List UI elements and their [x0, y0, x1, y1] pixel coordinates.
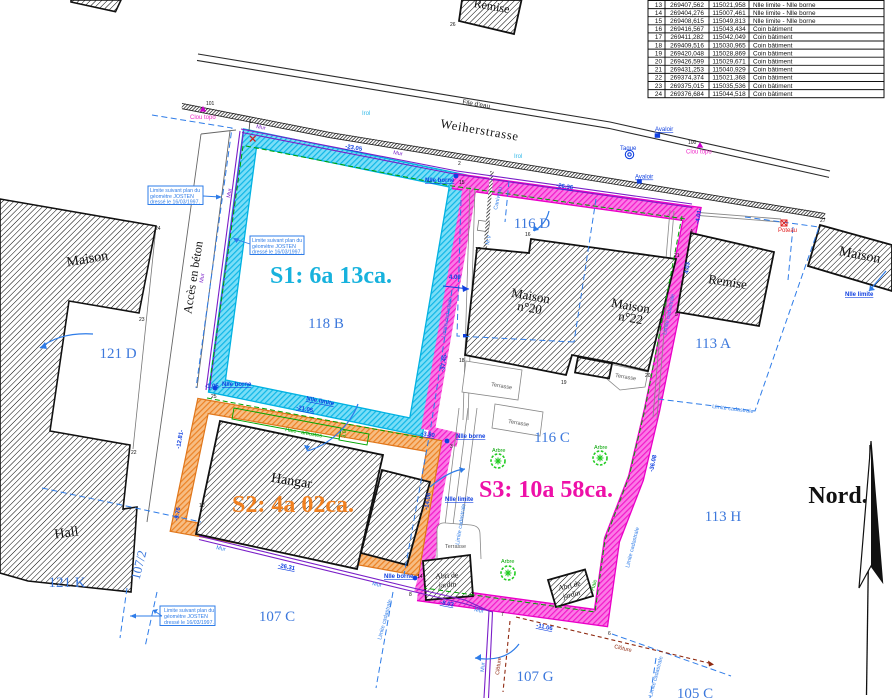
svg-text:115043,434: 115043,434 — [712, 26, 746, 33]
svg-text:Nlle borne: Nlle borne — [222, 382, 252, 388]
svg-text:Nlle limite - Nlle borne: Nlle limite - Nlle borne — [753, 2, 816, 9]
svg-text:8: 8 — [409, 592, 412, 598]
svg-text:jardin: jardin — [437, 579, 456, 589]
svg-text:115049,813: 115049,813 — [712, 18, 746, 25]
svg-text:Coin bâtiment: Coin bâtiment — [753, 83, 793, 90]
svg-text:Taque: Taque — [620, 146, 637, 152]
svg-text:dressé le 16/03/1997.: dressé le 16/03/1997. — [252, 250, 302, 256]
svg-text:269420,048: 269420,048 — [670, 50, 704, 57]
svg-text:23: 23 — [655, 83, 663, 90]
svg-text:3: 3 — [450, 444, 453, 450]
svg-text:Coin bâtiment: Coin bâtiment — [753, 91, 793, 98]
svg-text:Coin bâtiment: Coin bâtiment — [753, 67, 793, 74]
svg-text:Arbre: Arbre — [492, 448, 505, 454]
svg-text:121 D: 121 D — [99, 346, 136, 362]
svg-text:Avaloir: Avaloir — [655, 127, 673, 133]
svg-text:115042,049: 115042,049 — [712, 34, 746, 41]
svg-text:Nlle limite - Nlle borne: Nlle limite - Nlle borne — [753, 10, 816, 17]
svg-text:116 D: 116 D — [514, 216, 551, 232]
svg-text:Nlle borne: Nlle borne — [425, 178, 455, 184]
svg-text:7: 7 — [501, 612, 504, 618]
svg-text:269374,374: 269374,374 — [670, 75, 704, 82]
svg-text:21: 21 — [674, 253, 680, 259]
svg-text:Nlle limite - Nlle borne: Nlle limite - Nlle borne — [753, 18, 816, 25]
svg-text:Coin bâtiment: Coin bâtiment — [753, 59, 793, 66]
svg-text:S2: 4a 02ca.: S2: 4a 02ca. — [232, 492, 354, 518]
svg-text:19: 19 — [561, 380, 567, 386]
svg-text:269408,615: 269408,615 — [670, 18, 704, 25]
svg-text:Irol: Irol — [362, 111, 370, 117]
svg-text:115029,671: 115029,671 — [712, 59, 746, 66]
svg-text:Arbre: Arbre — [501, 559, 514, 565]
svg-text:17: 17 — [655, 34, 663, 41]
svg-text:19: 19 — [655, 50, 663, 57]
svg-text:116 C: 116 C — [534, 430, 570, 446]
svg-text:22: 22 — [655, 75, 663, 82]
svg-text:269416,567: 269416,567 — [670, 26, 704, 33]
svg-text:269376,684: 269376,684 — [670, 91, 704, 98]
svg-text:Coin bâtiment: Coin bâtiment — [753, 42, 793, 49]
svg-text:113 A: 113 A — [695, 336, 731, 352]
svg-text:Coin bâtiment: Coin bâtiment — [753, 26, 793, 33]
svg-text:Coin bâtiment: Coin bâtiment — [753, 50, 793, 57]
svg-text:Poteau: Poteau — [778, 228, 797, 234]
svg-text:24: 24 — [155, 226, 161, 232]
svg-text:6: 6 — [608, 631, 611, 637]
svg-text:115044,518: 115044,518 — [712, 91, 746, 98]
svg-text:115028,869: 115028,869 — [712, 50, 746, 57]
svg-text:16: 16 — [525, 232, 531, 238]
svg-text:15: 15 — [459, 180, 465, 186]
svg-text:20: 20 — [645, 373, 651, 379]
svg-text:115021,368: 115021,368 — [712, 75, 746, 82]
svg-text:1: 1 — [249, 119, 252, 125]
svg-text:22: 22 — [131, 450, 137, 456]
svg-text:269407,562: 269407,562 — [670, 2, 704, 9]
svg-text:2: 2 — [458, 161, 461, 167]
svg-text:Clou topo: Clou topo — [686, 150, 712, 156]
svg-text:18: 18 — [655, 42, 663, 49]
svg-text:27: 27 — [820, 218, 826, 224]
svg-text:269375,015: 269375,015 — [670, 83, 704, 90]
svg-text:269411,282: 269411,282 — [670, 34, 704, 41]
svg-text:113 H: 113 H — [705, 509, 742, 525]
svg-text:dressé le 16/03/1997.: dressé le 16/03/1997. — [164, 620, 214, 626]
svg-text:100: 100 — [688, 140, 697, 146]
svg-text:14: 14 — [417, 574, 423, 580]
svg-text:Nlle limite: Nlle limite — [845, 292, 874, 298]
svg-text:115007,461: 115007,461 — [712, 10, 746, 17]
svg-text:Avaloir: Avaloir — [635, 175, 653, 181]
svg-text:269426,599: 269426,599 — [670, 59, 704, 66]
svg-text:115040,929: 115040,929 — [712, 67, 746, 74]
svg-text:Clou topo: Clou topo — [190, 115, 216, 121]
svg-text:25: 25 — [211, 394, 217, 400]
svg-text:Coin bâtiment: Coin bâtiment — [753, 75, 793, 82]
svg-text:4: 4 — [690, 229, 693, 235]
svg-text:10: 10 — [199, 503, 205, 509]
svg-text:13: 13 — [655, 2, 663, 9]
svg-text:18: 18 — [459, 358, 465, 364]
svg-text:Nlle borne: Nlle borne — [384, 574, 414, 580]
svg-text:121 K: 121 K — [48, 575, 85, 591]
svg-text:269404,276: 269404,276 — [670, 10, 704, 17]
svg-text:118 B: 118 B — [308, 316, 344, 332]
svg-text:Arbre: Arbre — [594, 445, 607, 451]
svg-text:269409,516: 269409,516 — [670, 42, 704, 49]
svg-text:Nlle borne: Nlle borne — [456, 434, 486, 440]
svg-text:15: 15 — [655, 18, 663, 25]
svg-text:24: 24 — [655, 91, 663, 98]
svg-text:Mur: Mur — [480, 662, 487, 672]
svg-text:115030,965: 115030,965 — [712, 42, 746, 49]
svg-text:Nlle limite: Nlle limite — [445, 497, 474, 503]
svg-text:115021,958: 115021,958 — [712, 2, 746, 9]
svg-text:105 C: 105 C — [677, 686, 713, 698]
svg-text:14: 14 — [655, 10, 663, 17]
svg-text:21: 21 — [655, 67, 663, 74]
svg-text:17: 17 — [475, 247, 481, 253]
svg-text:26: 26 — [450, 22, 456, 28]
svg-text:107 C: 107 C — [259, 609, 295, 625]
svg-text:115035,536: 115035,536 — [712, 83, 746, 90]
svg-text:16: 16 — [655, 26, 663, 33]
svg-text:23: 23 — [139, 317, 145, 323]
svg-text:107 G: 107 G — [516, 669, 553, 685]
svg-text:Coin bâtiment: Coin bâtiment — [753, 34, 793, 41]
svg-text:dressé le 16/03/1997.: dressé le 16/03/1997. — [150, 200, 200, 206]
svg-text:S3: 10a 58ca.: S3: 10a 58ca. — [479, 477, 613, 503]
svg-text:Irol: Irol — [514, 154, 522, 160]
svg-text:Nord.: Nord. — [808, 483, 867, 509]
svg-text:20: 20 — [655, 59, 663, 66]
svg-text:101: 101 — [206, 101, 215, 107]
svg-text:269431,253: 269431,253 — [670, 67, 704, 74]
svg-text:4.00: 4.00 — [449, 275, 461, 281]
svg-text:S1: 6a 13ca.: S1: 6a 13ca. — [270, 263, 392, 289]
svg-text:-1.05: -1.05 — [205, 384, 219, 390]
svg-text:5: 5 — [675, 312, 678, 318]
